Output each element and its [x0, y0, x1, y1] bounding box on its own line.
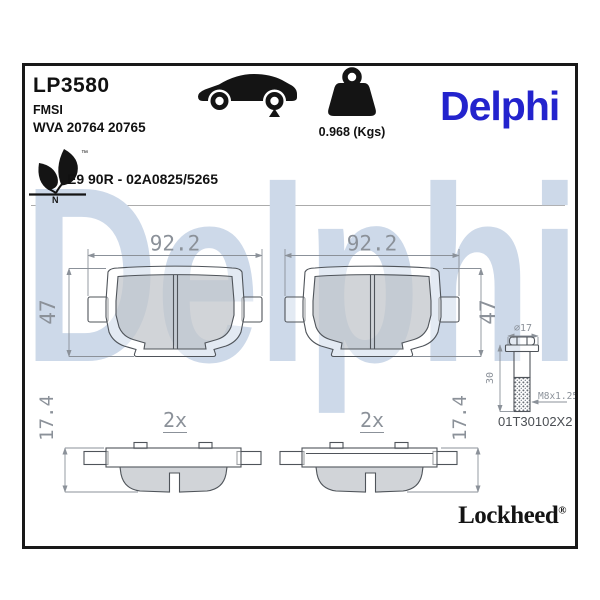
weight-handle [345, 70, 359, 84]
friction-material [313, 275, 431, 349]
pad-ear-right [242, 297, 262, 322]
svg-text:92.2: 92.2 [150, 232, 201, 256]
bolt-part-number: 01T30102X2 [498, 414, 572, 429]
eco-letter: N [52, 195, 59, 204]
leaf-small [38, 163, 58, 190]
pad-ear-left [285, 297, 305, 322]
backing-plate [106, 448, 241, 467]
pad-front-view-left [88, 266, 262, 356]
backing-plate [302, 448, 437, 467]
svg-text:47: 47 [476, 299, 500, 324]
pad-side-profile-right [280, 443, 457, 493]
quantity-label-left: 2x [163, 408, 187, 433]
bolt-length: 30 [485, 372, 496, 384]
page-title-part-number: LP3580 [33, 74, 110, 98]
trademark-symbol: ™ [81, 150, 88, 157]
delphi-logo: Delphi [440, 83, 559, 130]
weight-body [328, 83, 376, 116]
ear [84, 452, 108, 465]
technical-drawing: 92.2 92.2 47 47 2x 2x [22, 205, 578, 549]
bolt-thread-spec: M8x1.25 [538, 391, 578, 402]
svg-text:47: 47 [36, 299, 60, 324]
bolt-head [510, 337, 535, 345]
friction-material [120, 467, 227, 492]
friction-material [316, 467, 423, 492]
registered-mark: ® [558, 505, 566, 517]
bolt-head-diameter: ⌀17 [514, 323, 532, 334]
svg-text:17.4: 17.4 [36, 395, 58, 441]
svg-text:2x: 2x [163, 408, 187, 432]
pad-ear-right [439, 297, 459, 322]
weight-icon [326, 67, 378, 124]
wva-reference: WVA 20764 20765 [33, 120, 146, 135]
friction-material [116, 275, 234, 349]
bolt-shank [514, 352, 530, 378]
ear [280, 452, 304, 465]
lockheed-logo: Lockheed® [458, 502, 566, 530]
pad-ear-left [88, 297, 108, 322]
svg-text:17.4: 17.4 [449, 395, 471, 441]
car-icon [196, 70, 300, 118]
rear-axle-marker [269, 109, 280, 118]
fmsi-label: FMSI [33, 103, 63, 117]
weight-value: 0.968 (Kgs) [302, 125, 402, 139]
bolt-flange [506, 345, 539, 352]
bolt-thread [514, 378, 530, 412]
svg-text:2x: 2x [360, 408, 384, 432]
content-frame: Delphi LP3580 FMSI WVA 20764 20765 0.968… [22, 63, 578, 549]
datasheet-page: { "watermark": "Delphi", "header": { "pa… [0, 0, 600, 600]
quantity-label-right: 2x [360, 408, 384, 433]
type-approval-number: E9 90R - 02A0825/5265 [67, 171, 218, 187]
bolt-drawing: ⌀17 30 M8x1.25 01T30102X2 [485, 323, 578, 429]
pad-front-view-right [285, 266, 459, 356]
pad-side-profile-left [84, 443, 261, 493]
svg-text:92.2: 92.2 [347, 232, 398, 256]
